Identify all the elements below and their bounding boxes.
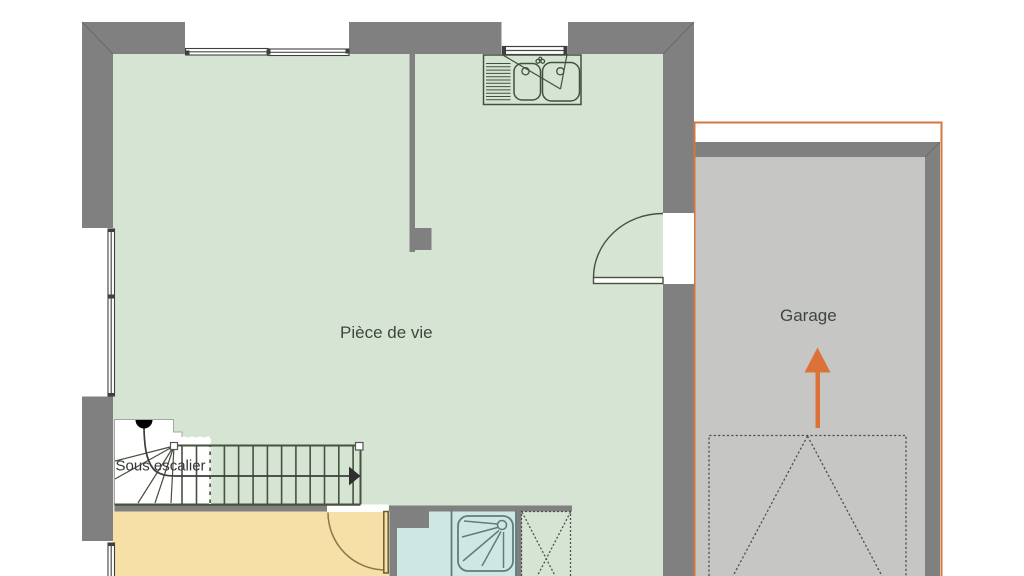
svg-text:Garage: Garage [780,306,837,325]
svg-text:Pièce de vie: Pièce de vie [340,323,433,342]
svg-text:Sous escalier: Sous escalier [116,458,206,475]
